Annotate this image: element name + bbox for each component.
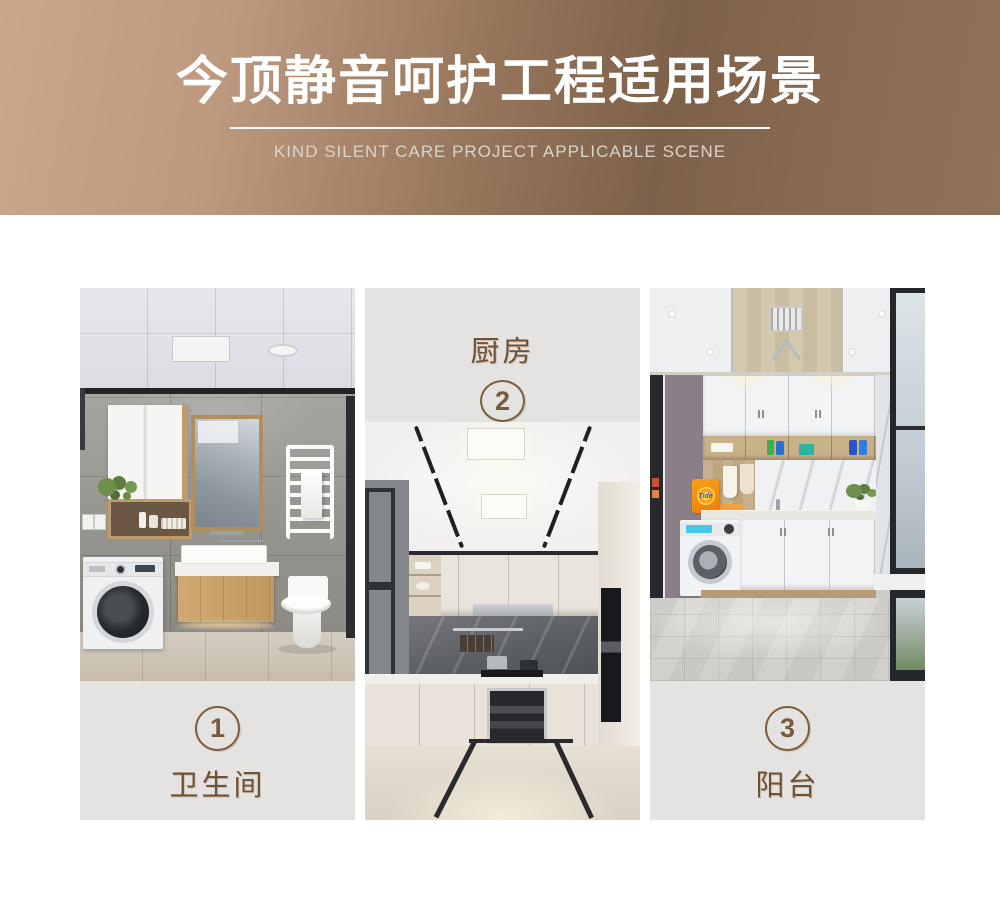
- scene-name-bathroom: 卫生间: [169, 762, 265, 804]
- kitchen-label: 厨房 2: [365, 288, 640, 422]
- bathroom-label: 1 卫生间: [80, 681, 355, 820]
- ceiling-vent: [268, 344, 298, 357]
- scene-number: 3: [780, 715, 795, 742]
- wall-edge: [80, 388, 85, 450]
- marble-backsplash: [409, 616, 611, 676]
- light-switch: [82, 514, 106, 530]
- ceiling-light-panel: [467, 428, 525, 460]
- open-shelf: [108, 499, 192, 539]
- towel: [301, 470, 322, 518]
- washing-machine: [83, 557, 163, 649]
- door-frame: [346, 396, 355, 638]
- built-in-oven: [487, 688, 547, 744]
- base-cabinets: [740, 520, 876, 590]
- banner: 今顶静音呵护工程适用场景 KIND SILENT CARE PROJECT AP…: [0, 0, 1000, 215]
- cabinet-handle: [758, 410, 760, 418]
- washer-knob: [115, 564, 126, 575]
- circle-number-3-icon: 3: [765, 706, 810, 751]
- banner-subtitle: KIND SILENT CARE PROJECT APPLICABLE SCEN…: [0, 142, 1000, 162]
- detergent-bottle: [776, 441, 784, 455]
- spice-rack: [460, 635, 494, 652]
- spotlight: [848, 348, 856, 356]
- cabinet-handle: [819, 410, 821, 418]
- shelf-bottle: [149, 515, 158, 528]
- circle-number-2-icon: 2: [480, 380, 525, 422]
- cooking-pot: [487, 656, 507, 669]
- hanging-towel: [740, 464, 754, 494]
- ceiling-vent: [769, 306, 803, 332]
- ceiling-light-panel: [172, 336, 230, 362]
- upper-cabinets: [703, 376, 876, 437]
- tide-logo: Tide: [698, 493, 712, 500]
- scene-card-balcony: Tide: [650, 288, 925, 820]
- washer-display: [686, 525, 712, 533]
- wok: [520, 660, 538, 670]
- detergent-bottle: [767, 440, 774, 455]
- washer-display: [89, 566, 105, 572]
- spotlight: [878, 310, 886, 318]
- scene-number: 1: [210, 715, 225, 742]
- scene-name-balcony: 阳台: [755, 762, 819, 804]
- vanity-counter: [175, 562, 279, 576]
- towel-stack: [711, 443, 733, 452]
- detergent-pack: [799, 444, 814, 455]
- spotlight: [668, 310, 676, 318]
- gas-cooktop: [481, 670, 543, 677]
- faucet: [210, 531, 244, 535]
- door-frame: [650, 375, 665, 625]
- balcony-label: 3 阳台: [650, 681, 925, 820]
- kitchen-floor: [365, 746, 640, 820]
- banner-divider: [230, 127, 770, 129]
- tide-detergent-bag: Tide: [692, 479, 719, 513]
- dish: [415, 562, 431, 569]
- vanity-cabinet: [178, 576, 274, 622]
- hanging-towel: [723, 466, 737, 498]
- shelf-item: [652, 490, 659, 498]
- marble-pilaster: [876, 375, 890, 578]
- green-plant: [98, 478, 116, 496]
- washer-logo: [135, 565, 155, 572]
- scene-grid: 1 卫生间 厨房 2: [80, 288, 925, 820]
- built-in-appliance-column: [601, 588, 621, 722]
- cabinet-handle: [762, 410, 764, 418]
- dish: [416, 582, 430, 590]
- ceiling-light-panel: [481, 494, 527, 519]
- banner-title: 今顶静音呵护工程适用场景: [0, 0, 1000, 111]
- scene-card-kitchen: 厨房 2: [365, 288, 640, 820]
- shelf-bottle: [139, 512, 146, 528]
- washer-door: [92, 581, 154, 643]
- spotlight: [706, 348, 714, 356]
- window-pane-upper: [896, 293, 925, 568]
- scene-card-bathroom: 1 卫生间: [80, 288, 355, 820]
- floor-inlay-line: [469, 739, 573, 743]
- scene-number: 2: [495, 388, 510, 415]
- utensil-rail: [453, 628, 523, 631]
- washer-knob: [724, 524, 734, 534]
- cabinet-handle: [784, 528, 786, 536]
- balcony-photo: Tide: [650, 288, 925, 681]
- under-cabinet-light: [178, 622, 274, 628]
- bathroom-photo: [80, 288, 355, 681]
- scene-name-kitchen: 厨房: [470, 328, 534, 370]
- washer-door: [688, 540, 732, 584]
- mirror-reflection: [198, 421, 238, 443]
- open-shelf: [703, 436, 876, 460]
- kitchen-window: [365, 488, 395, 684]
- wall-cabinet: [108, 405, 188, 501]
- window-pane-lower: [896, 598, 925, 670]
- detergent-bottle: [849, 440, 857, 455]
- shelf-item: [652, 478, 659, 487]
- green-plant: [846, 484, 862, 498]
- detergent-bottle: [859, 440, 867, 455]
- wash-basin: [181, 545, 267, 564]
- window-sill: [874, 574, 925, 590]
- shelf-basket: [161, 518, 186, 529]
- circle-number-1-icon: 1: [195, 706, 240, 751]
- cabinet-handle: [832, 528, 834, 536]
- toilet-seat: [281, 594, 331, 614]
- promo-page: 今顶静音呵护工程适用场景 KIND SILENT CARE PROJECT AP…: [0, 0, 1000, 912]
- washing-machine: [680, 520, 740, 596]
- tide-bullseye: Tide: [697, 487, 715, 505]
- kitchen-photo: [365, 422, 640, 820]
- cabinet-handle: [828, 528, 830, 536]
- balcony-floor: [650, 598, 890, 681]
- cabinet-handle: [815, 410, 817, 418]
- cabinet-handle: [780, 528, 782, 536]
